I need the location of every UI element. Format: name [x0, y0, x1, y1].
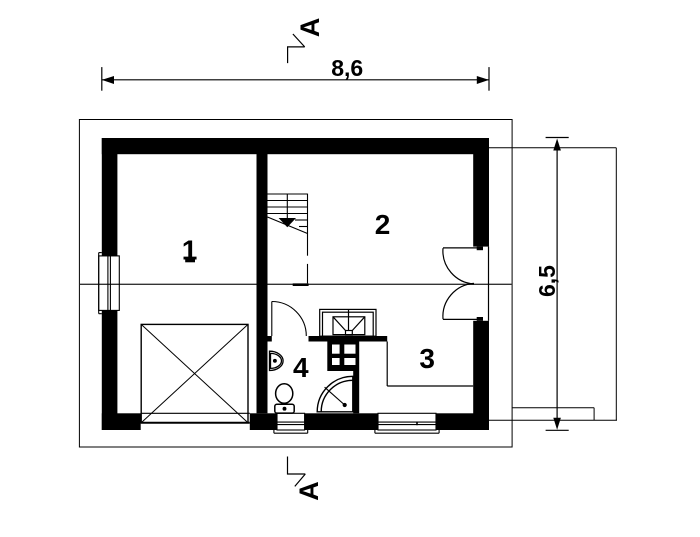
svg-text:6,5: 6,5 — [534, 265, 560, 297]
svg-text:8,6: 8,6 — [331, 55, 363, 81]
svg-text:A: A — [294, 481, 324, 501]
svg-text:4: 4 — [293, 352, 309, 383]
svg-text:2: 2 — [375, 209, 391, 240]
svg-text:A: A — [295, 18, 325, 38]
svg-text:3: 3 — [419, 343, 435, 374]
